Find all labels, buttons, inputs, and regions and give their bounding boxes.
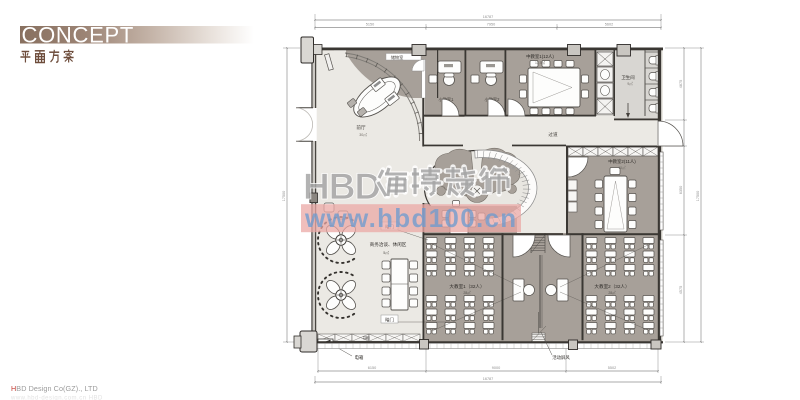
svg-text:4875: 4875 bbox=[679, 80, 683, 88]
svg-text:BD Design Co(GZ)., LTD: BD Design Co(GZ)., LTD bbox=[16, 384, 98, 393]
svg-text:15㎡: 15㎡ bbox=[618, 165, 626, 170]
svg-text:CONCEPT: CONCEPT bbox=[22, 23, 134, 48]
svg-text:中教室1(12人): 中教室1(12人) bbox=[526, 53, 554, 60]
svg-text:16787: 16787 bbox=[483, 15, 494, 19]
svg-text:28㎡: 28㎡ bbox=[463, 290, 471, 295]
svg-text:大教室2（32人）: 大教室2（32人） bbox=[594, 283, 629, 290]
svg-text:30㎡: 30㎡ bbox=[359, 132, 367, 137]
svg-text:过道: 过道 bbox=[548, 131, 558, 138]
svg-text:™: ™ bbox=[508, 165, 516, 174]
svg-text:9㎡: 9㎡ bbox=[627, 81, 633, 86]
svg-text:www.hbd-design.com.cn HBD: www.hbd-design.com.cn HBD bbox=[10, 396, 103, 400]
svg-text:9000: 9000 bbox=[492, 366, 500, 370]
svg-text:卫生间: 卫生间 bbox=[621, 74, 634, 81]
svg-text:中教室2(11人): 中教室2(11人) bbox=[608, 158, 636, 165]
svg-text:7950: 7950 bbox=[487, 23, 495, 27]
svg-text:4575: 4575 bbox=[679, 286, 683, 294]
svg-text:暗门: 暗门 bbox=[385, 316, 394, 323]
svg-text:16787: 16787 bbox=[483, 377, 494, 381]
svg-text:商务洽谈、休闲区: 商务洽谈、休闲区 bbox=[370, 241, 407, 248]
svg-text:6350: 6350 bbox=[679, 186, 683, 194]
svg-text:活动屏风: 活动屏风 bbox=[552, 354, 570, 361]
svg-text:HBD: HBD bbox=[303, 166, 380, 207]
svg-text:www.hbd100.cn: www.hbd100.cn bbox=[304, 203, 517, 233]
svg-text:5150: 5150 bbox=[366, 23, 374, 27]
svg-text:17500: 17500 bbox=[282, 191, 286, 202]
svg-text:书柜: 书柜 bbox=[362, 335, 370, 340]
svg-text:前厅: 前厅 bbox=[356, 124, 366, 131]
svg-text:13.5㎡: 13.5㎡ bbox=[535, 60, 546, 65]
svg-text:17500: 17500 bbox=[696, 191, 700, 202]
svg-text:5602: 5602 bbox=[605, 23, 613, 27]
svg-text:5502: 5502 bbox=[608, 366, 616, 370]
svg-text:28㎡: 28㎡ bbox=[608, 290, 616, 295]
svg-text:大教室1（32人）: 大教室1（32人） bbox=[449, 283, 484, 290]
svg-text:5㎡: 5㎡ bbox=[383, 250, 389, 255]
svg-text:电箱: 电箱 bbox=[355, 354, 364, 361]
svg-text:储物室: 储物室 bbox=[391, 54, 404, 61]
svg-text:6150: 6150 bbox=[368, 366, 376, 370]
